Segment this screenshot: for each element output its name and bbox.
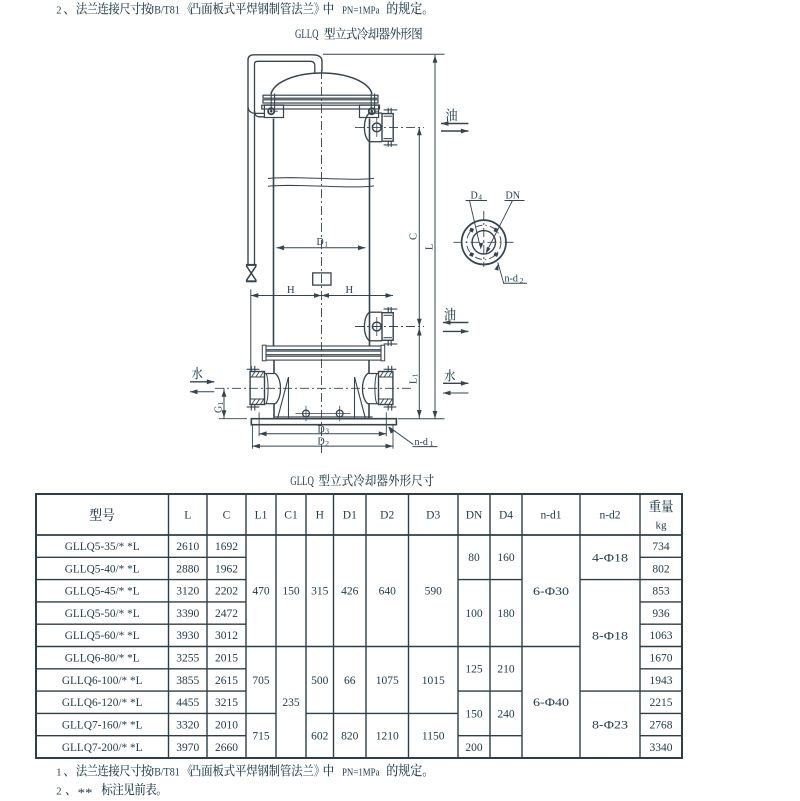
svg-text:2215: 2215 <box>650 697 673 709</box>
svg-text:3012: 3012 <box>215 630 238 642</box>
svg-text:C1: C1 <box>284 510 298 522</box>
svg-text:125: 125 <box>465 664 483 676</box>
svg-text:D: D <box>318 424 325 435</box>
svg-text:2202: 2202 <box>215 586 238 598</box>
svg-text:1: 1 <box>56 767 61 778</box>
svg-text:715: 715 <box>252 731 270 743</box>
svg-text:6-Φ30: 6-Φ30 <box>533 586 569 598</box>
svg-text:D2: D2 <box>380 510 394 522</box>
svg-text:n-d2: n-d2 <box>599 510 620 522</box>
svg-text:100: 100 <box>465 608 483 620</box>
svg-text:200: 200 <box>465 742 483 754</box>
svg-text:D: D <box>471 191 478 202</box>
svg-text:1670: 1670 <box>650 653 673 665</box>
svg-text:4455: 4455 <box>176 697 199 709</box>
svg-text:3320: 3320 <box>176 719 199 731</box>
svg-text:n-d1: n-d1 <box>540 510 561 522</box>
svg-text:6-Φ40: 6-Φ40 <box>533 697 569 709</box>
svg-text:2: 2 <box>56 5 61 16</box>
svg-text:2660: 2660 <box>215 742 238 754</box>
svg-text:GLLQ7-160/* *L: GLLQ7-160/* *L <box>62 719 143 731</box>
svg-text:3390: 3390 <box>176 608 199 620</box>
svg-text:80: 80 <box>468 552 480 564</box>
svg-text:802: 802 <box>652 563 670 575</box>
svg-text:2010: 2010 <box>215 719 238 731</box>
svg-text:3120: 3120 <box>176 586 199 598</box>
svg-text:D4: D4 <box>499 510 513 522</box>
svg-text:1962: 1962 <box>215 563 238 575</box>
svg-text:GLLQ6-100/* *L: GLLQ6-100/* *L <box>62 675 143 687</box>
svg-text:3215: 3215 <box>215 697 238 709</box>
svg-text:2615: 2615 <box>215 675 238 687</box>
svg-text:2: 2 <box>325 439 329 448</box>
svg-text:3: 3 <box>325 427 329 436</box>
svg-text:JB/T81: JB/T81 <box>150 766 180 778</box>
svg-text:1692: 1692 <box>215 541 238 553</box>
svg-text:L: L <box>424 244 435 250</box>
svg-text:D1: D1 <box>343 510 357 522</box>
svg-text:GLLQ5-45/* *L: GLLQ5-45/* *L <box>65 586 140 598</box>
svg-text:500: 500 <box>311 675 329 687</box>
svg-text:H: H <box>316 510 324 522</box>
svg-text:C: C <box>223 510 231 522</box>
svg-text:235: 235 <box>282 697 300 709</box>
svg-text:n-d: n-d <box>505 274 518 285</box>
svg-text:2: 2 <box>56 786 61 797</box>
svg-text:470: 470 <box>252 586 270 598</box>
svg-text:210: 210 <box>497 664 515 676</box>
svg-text:D3: D3 <box>426 510 440 522</box>
svg-text:GLLQ: GLLQ <box>290 474 314 488</box>
svg-text:L1: L1 <box>255 510 268 522</box>
svg-text:JB/T81: JB/T81 <box>150 4 180 16</box>
svg-text:2472: 2472 <box>215 608 238 620</box>
svg-text:2015: 2015 <box>215 653 238 665</box>
svg-text:705: 705 <box>252 675 270 687</box>
svg-text:3970: 3970 <box>176 742 199 754</box>
svg-text:GLLQ5-40/* *L: GLLQ5-40/* *L <box>65 563 140 575</box>
svg-text:PN=1MPa: PN=1MPa <box>342 4 380 16</box>
svg-text:66: 66 <box>344 675 356 687</box>
svg-text:3255: 3255 <box>176 653 199 665</box>
svg-text:GLLQ5-50/* *L: GLLQ5-50/* *L <box>65 608 140 620</box>
svg-text:602: 602 <box>311 731 329 743</box>
svg-text:GLLQ5-35/* *L: GLLQ5-35/* *L <box>65 541 140 553</box>
svg-text:150: 150 <box>465 708 483 720</box>
svg-text:1: 1 <box>324 240 328 249</box>
svg-text:GLLQ6-120/* *L: GLLQ6-120/* *L <box>62 697 143 709</box>
svg-text:1150: 1150 <box>422 731 445 743</box>
svg-text:1: 1 <box>411 374 420 378</box>
svg-text:853: 853 <box>652 586 670 598</box>
svg-text:426: 426 <box>341 586 359 598</box>
svg-text:3930: 3930 <box>176 630 199 642</box>
svg-text:3340: 3340 <box>650 742 673 754</box>
svg-text:820: 820 <box>341 731 359 743</box>
svg-text:H: H <box>346 285 354 296</box>
svg-text:2610: 2610 <box>176 541 199 553</box>
svg-text:160: 160 <box>497 552 515 564</box>
svg-text:L: L <box>408 378 419 384</box>
svg-text:8-Φ23: 8-Φ23 <box>592 720 628 732</box>
svg-text:240: 240 <box>497 708 515 720</box>
svg-text:1: 1 <box>216 402 225 406</box>
svg-text:3855: 3855 <box>176 675 199 687</box>
svg-text:L: L <box>184 510 191 522</box>
svg-text:4-Φ18: 4-Φ18 <box>592 552 628 564</box>
svg-text:315: 315 <box>311 586 329 598</box>
svg-text:D: D <box>317 237 324 248</box>
svg-text:2768: 2768 <box>650 719 673 731</box>
svg-text:1015: 1015 <box>422 675 445 687</box>
svg-text:PN=1MPa: PN=1MPa <box>342 766 380 778</box>
svg-text:2880: 2880 <box>176 563 199 575</box>
svg-text:H: H <box>287 285 295 296</box>
svg-text:1943: 1943 <box>650 675 673 687</box>
svg-text:D: D <box>318 437 325 448</box>
svg-text:GLLQ5-60/* *L: GLLQ5-60/* *L <box>65 630 140 642</box>
svg-text:640: 640 <box>379 586 397 598</box>
svg-text:734: 734 <box>652 541 670 553</box>
svg-text:8-Φ18: 8-Φ18 <box>592 630 628 642</box>
svg-text:1063: 1063 <box>650 630 673 642</box>
svg-text:DN: DN <box>506 191 520 202</box>
svg-text:2: 2 <box>520 276 524 285</box>
svg-text:n-d: n-d <box>415 437 428 448</box>
svg-text:936: 936 <box>652 608 670 620</box>
svg-text:kg: kg <box>656 520 668 532</box>
svg-text:1075: 1075 <box>376 675 399 687</box>
svg-text:C: C <box>409 233 420 240</box>
svg-text:GLLQ6-80/* *L: GLLQ6-80/* *L <box>65 653 140 665</box>
svg-text:150: 150 <box>282 586 300 598</box>
svg-text:GLLQ: GLLQ <box>295 27 319 41</box>
svg-text:590: 590 <box>425 586 443 598</box>
svg-text:1: 1 <box>430 439 434 448</box>
svg-text:1210: 1210 <box>376 731 399 743</box>
svg-text:G: G <box>214 406 225 413</box>
svg-text:GLLQ7-200/* *L: GLLQ7-200/* *L <box>62 742 143 754</box>
svg-text:**: ** <box>78 785 93 800</box>
svg-text:180: 180 <box>497 608 515 620</box>
svg-text:DN: DN <box>466 510 483 522</box>
